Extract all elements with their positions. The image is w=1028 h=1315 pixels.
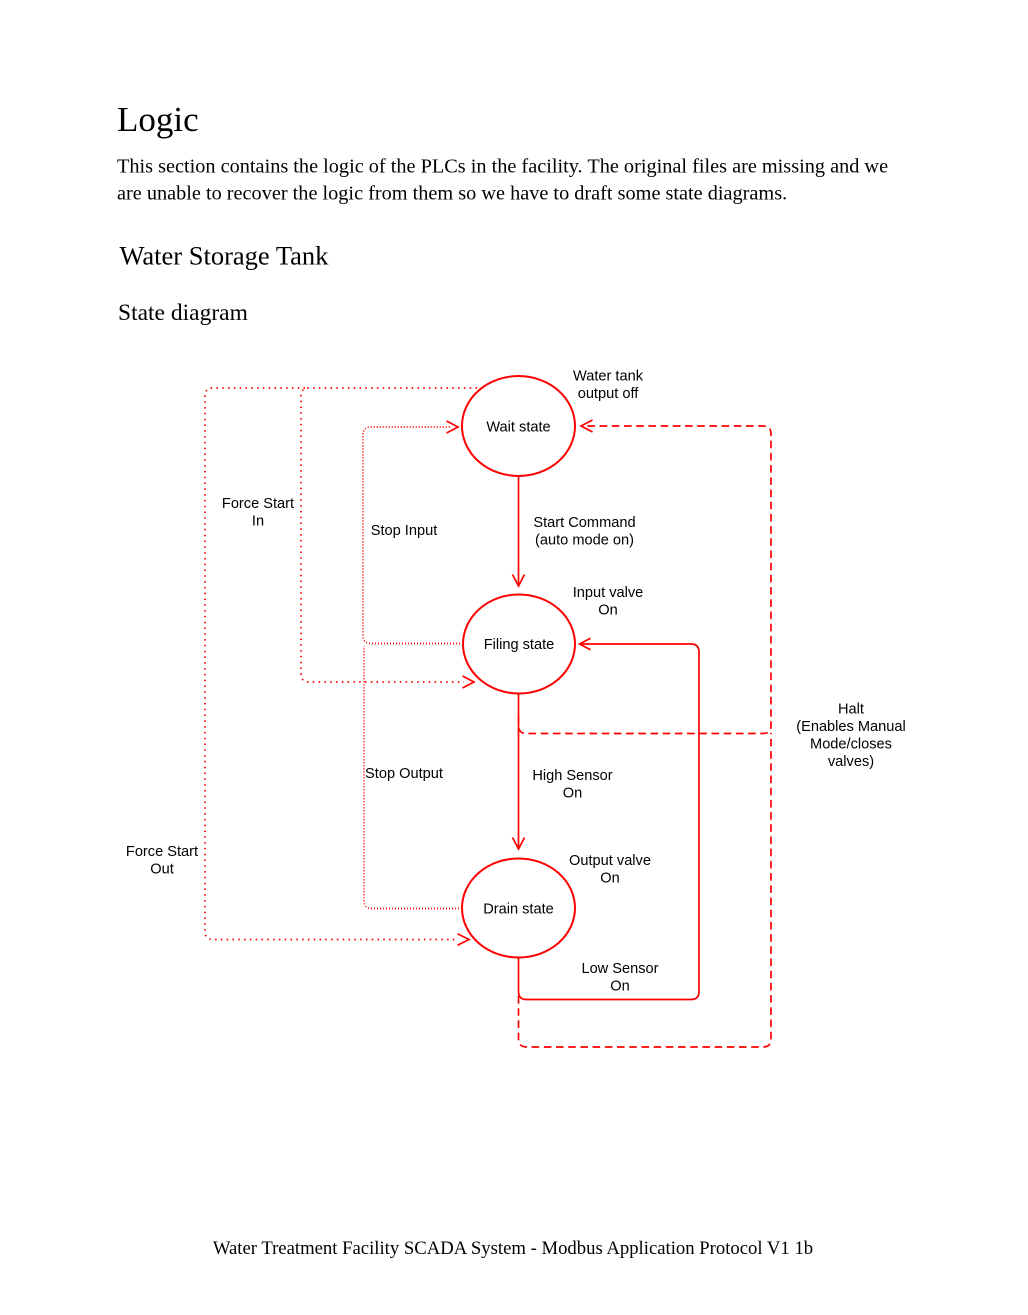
svg-text:Start Command: Start Command — [533, 515, 635, 531]
svg-text:Wait state: Wait state — [486, 420, 550, 436]
svg-text:(Enables Manual: (Enables Manual — [796, 719, 906, 735]
svg-text:High Sensor: High Sensor — [532, 768, 612, 784]
svg-text:In: In — [252, 514, 264, 530]
svg-text:are unable to recover the logi: are unable to recover the logic from the… — [117, 183, 787, 205]
svg-text:On: On — [598, 603, 617, 619]
svg-text:Water tank: Water tank — [573, 369, 644, 385]
svg-text:valves): valves) — [828, 754, 874, 770]
svg-text:Drain state: Drain state — [483, 902, 554, 918]
svg-text:Water Storage Tank: Water Storage Tank — [120, 241, 330, 271]
svg-text:output off: output off — [578, 386, 640, 402]
svg-text:Force Start: Force Start — [126, 844, 198, 860]
svg-text:Halt: Halt — [838, 702, 864, 718]
svg-text:Input valve: Input valve — [573, 585, 644, 601]
svg-text:Output valve: Output valve — [569, 853, 651, 869]
svg-text:Water Treatment Facility SCADA: Water Treatment Facility SCADA System - … — [213, 1238, 813, 1259]
svg-text:Logic: Logic — [117, 100, 199, 139]
svg-text:On: On — [600, 871, 619, 887]
svg-text:Low Sensor: Low Sensor — [581, 961, 658, 977]
svg-text:Stop Output: Stop Output — [365, 766, 443, 782]
svg-text:On: On — [610, 979, 629, 995]
svg-text:State diagram: State diagram — [118, 300, 248, 326]
svg-text:Mode/closes: Mode/closes — [810, 737, 892, 753]
svg-text:Stop Input: Stop Input — [371, 523, 438, 539]
svg-text:This section contains the logi: This section contains the logic of the P… — [117, 156, 888, 178]
svg-text:On: On — [563, 786, 582, 802]
svg-text:Force Start: Force Start — [222, 496, 294, 512]
svg-text:Out: Out — [150, 862, 174, 878]
svg-text:(auto mode on): (auto mode on) — [535, 533, 634, 549]
svg-text:Filing state: Filing state — [484, 637, 555, 653]
